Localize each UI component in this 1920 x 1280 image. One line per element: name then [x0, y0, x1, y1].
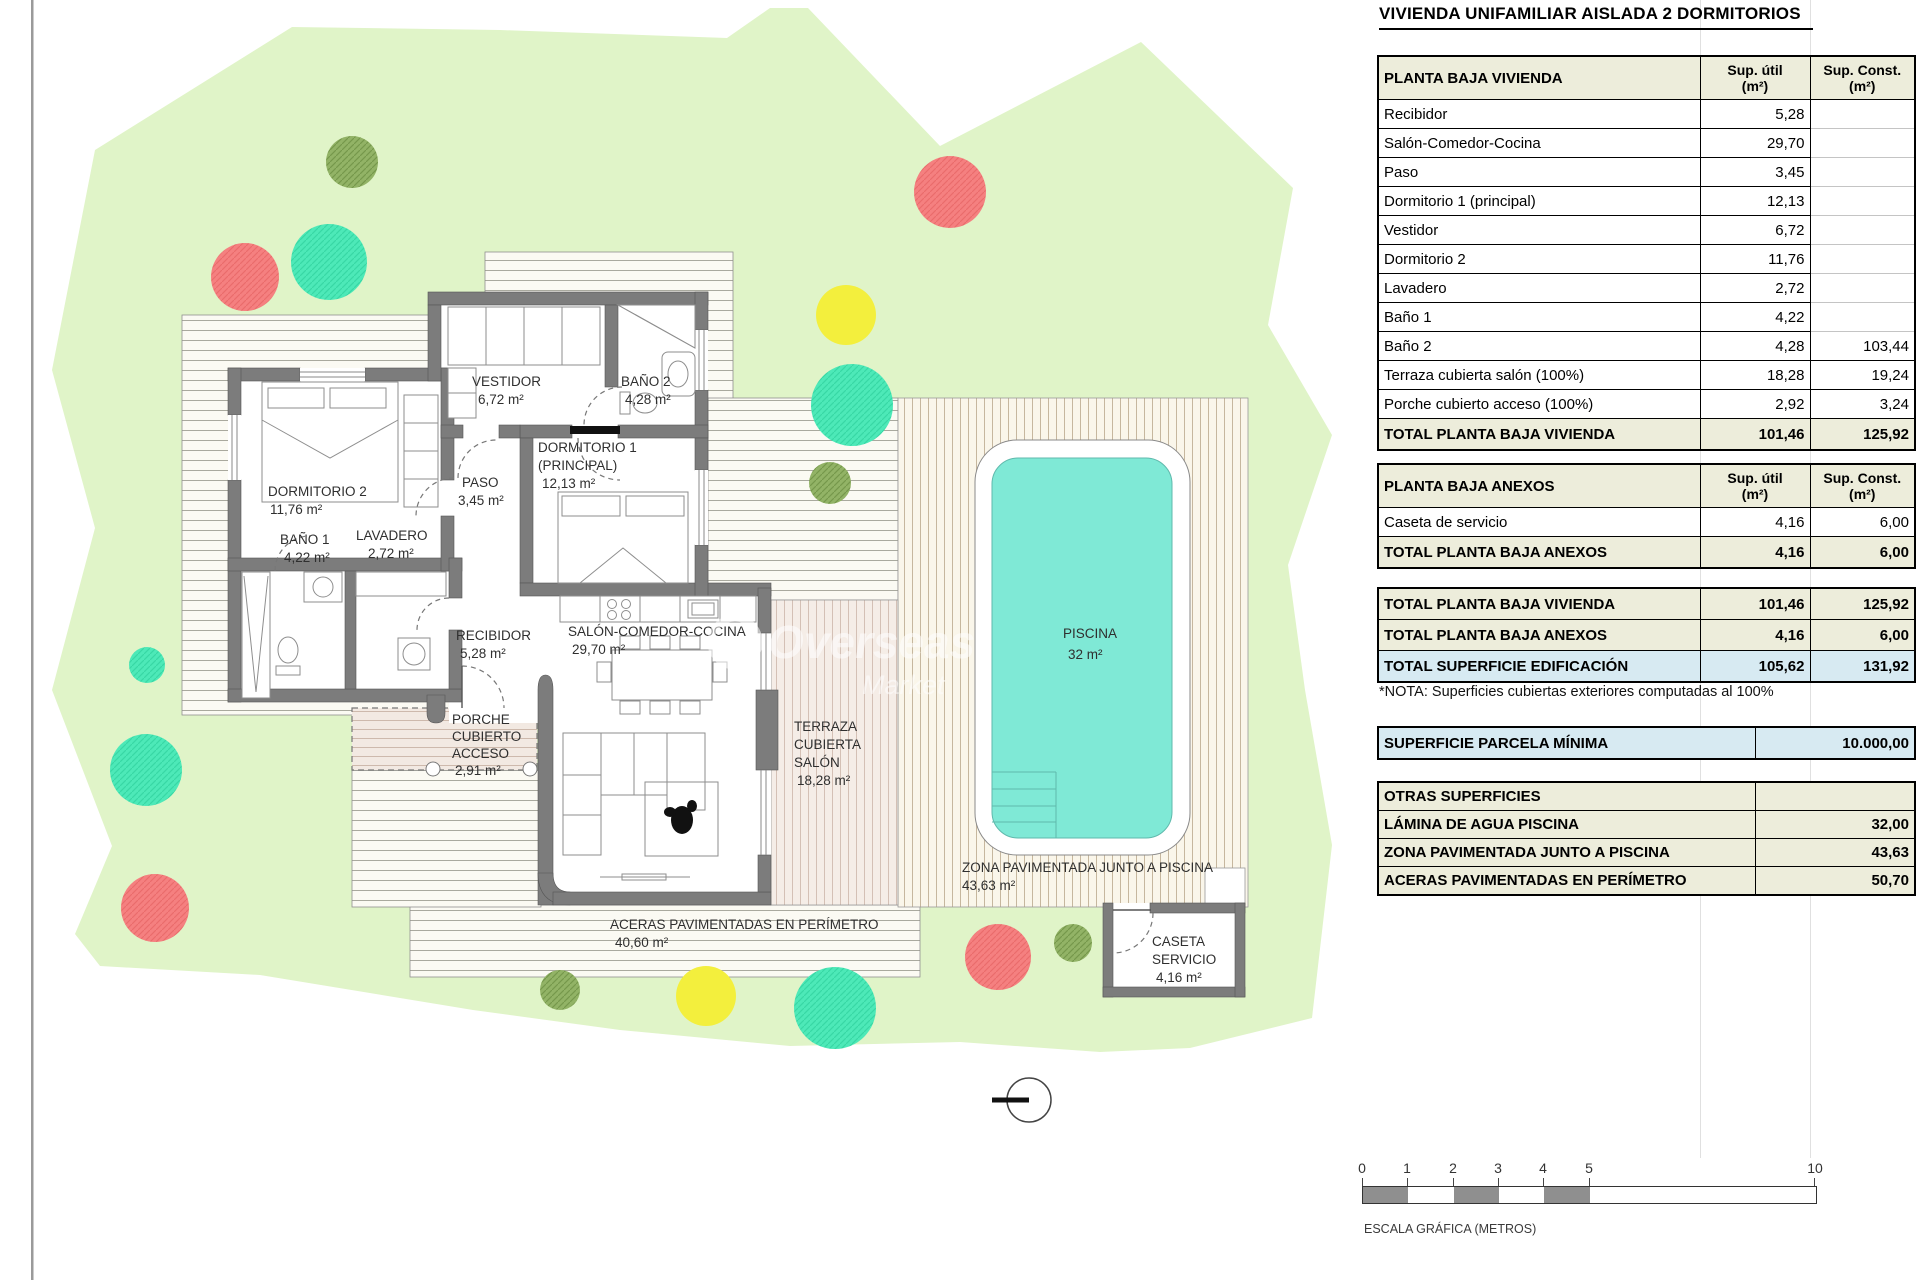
table-header: PLANTA BAJA ANEXOS Sup. útil(m²) Sup. Co…: [1378, 464, 1915, 508]
table-row: Baño 14,22: [1378, 303, 1915, 332]
table-row: LÁMINA DE AGUA PISCINA32,00: [1378, 811, 1915, 839]
col-title: PLANTA BAJA ANEXOS: [1378, 464, 1700, 508]
scale-tick: 10: [1807, 1160, 1823, 1176]
drawing-frame-line: [31, 0, 34, 1280]
site-plan: DORMITORIO 211,76 m² BAÑO 14,22 m² LAVAD…: [0, 0, 1380, 1280]
note-text: *NOTA: Superficies cubiertas exteriores …: [1379, 684, 1774, 700]
tree-icon: [794, 967, 876, 1049]
scale-bar-strip: [1362, 1186, 1817, 1204]
svg-text:Market: Market: [862, 670, 946, 700]
table-row: Lavadero2,72: [1378, 274, 1915, 303]
scale-tick: 4: [1539, 1160, 1547, 1176]
summary-panel: VIVIENDA UNIFAMILIAR AISLADA 2 DORMITORI…: [1377, 0, 1915, 1280]
col-sup-util: Sup. útil(m²): [1700, 464, 1810, 508]
tree-icon: [129, 647, 165, 683]
tree-icon: [110, 734, 182, 806]
scale-bar: 0 1 2 3 4 5 10: [1362, 1160, 1832, 1230]
tree-icon: [809, 462, 851, 504]
table-row: Recibidor5,28: [1378, 100, 1915, 129]
tree-icon: [291, 224, 367, 300]
scale-caption: ESCALA GRÁFICA (METROS): [1364, 1222, 1536, 1236]
tree-icon: [965, 924, 1031, 990]
table-superficie-parcela: SUPERFICIE PARCELA MÍNIMA10.000,00: [1377, 726, 1916, 760]
tree-icon: [211, 243, 279, 311]
table-total-row: TOTAL PLANTA BAJA ANEXOS4,166,00: [1378, 620, 1915, 651]
table-row: ZONA PAVIMENTADA JUNTO A PISCINA43,63: [1378, 839, 1915, 867]
tree-icon: [326, 136, 378, 188]
table-planta-baja-anexos: PLANTA BAJA ANEXOS Sup. útil(m²) Sup. Co…: [1377, 463, 1916, 569]
tree-icon: [816, 285, 876, 345]
table-total-row: TOTAL PLANTA BAJA VIVIENDA101,46125,92: [1378, 588, 1915, 620]
svg-text:Overseas: Overseas: [768, 616, 975, 668]
scale-tick: 5: [1585, 1160, 1593, 1176]
table-row: Baño 24,28103,44: [1378, 332, 1915, 361]
scale-tick: 0: [1358, 1160, 1366, 1176]
table-row: Paso3,45: [1378, 158, 1915, 187]
table-row: Caseta de servicio4,166,00: [1378, 508, 1915, 537]
table-total-row: TOTAL SUPERFICIE EDIFICACIÓN105,62131,92: [1378, 651, 1915, 683]
table-otras-superficies: OTRAS SUPERFICIES LÁMINA DE AGUA PISCINA…: [1377, 781, 1916, 896]
table-header: OTRAS SUPERFICIES: [1378, 782, 1915, 811]
table-row: ACERAS PAVIMENTADAS EN PERÍMETRO50,70: [1378, 867, 1915, 896]
tree-icon: [540, 970, 580, 1010]
page-title: VIVIENDA UNIFAMILIAR AISLADA 2 DORMITORI…: [1379, 4, 1813, 30]
tree-icon: [914, 156, 986, 228]
table-header: PLANTA BAJA VIVIENDA Sup. útil(m²) Sup. …: [1378, 56, 1915, 100]
tree-icon: [811, 364, 893, 446]
furniture-dormitorio-1: [558, 492, 688, 583]
table-row: SUPERFICIE PARCELA MÍNIMA10.000,00: [1378, 727, 1915, 759]
tree-icon: [1054, 924, 1092, 962]
col-sup-const: Sup. Const.(m²): [1810, 56, 1915, 100]
col-sup-const: Sup. Const.(m²): [1810, 464, 1915, 508]
door-lintel: [570, 426, 620, 434]
col-title: PLANTA BAJA VIVIENDA: [1378, 56, 1700, 100]
table-row: Dormitorio 211,76: [1378, 245, 1915, 274]
table-row: Porche cubierto acceso (100%)2,923,24: [1378, 390, 1915, 419]
north-arrow-icon: [992, 1078, 1051, 1122]
table-row: Terraza cubierta salón (100%)18,2819,24: [1378, 361, 1915, 390]
scale-tick: 1: [1403, 1160, 1411, 1176]
table-total-row: TOTAL PLANTA BAJA VIVIENDA101,46125,92: [1378, 419, 1915, 451]
table-total-row: TOTAL PLANTA BAJA ANEXOS4,166,00: [1378, 537, 1915, 569]
scale-tick: 2: [1449, 1160, 1457, 1176]
table-row: Vestidor6,72: [1378, 216, 1915, 245]
tree-icon: [676, 966, 736, 1026]
tree-icon: [121, 874, 189, 942]
table-planta-baja-vivienda: PLANTA BAJA VIVIENDA Sup. útil(m²) Sup. …: [1377, 55, 1916, 451]
table-totales: TOTAL PLANTA BAJA VIVIENDA101,46125,92 T…: [1377, 587, 1916, 683]
scale-tick: 3: [1494, 1160, 1502, 1176]
col-sup-util: Sup. útil(m²): [1700, 56, 1810, 100]
table-row: Salón-Comedor-Cocina29,70: [1378, 129, 1915, 158]
table-row: Dormitorio 1 (principal)12,13: [1378, 187, 1915, 216]
